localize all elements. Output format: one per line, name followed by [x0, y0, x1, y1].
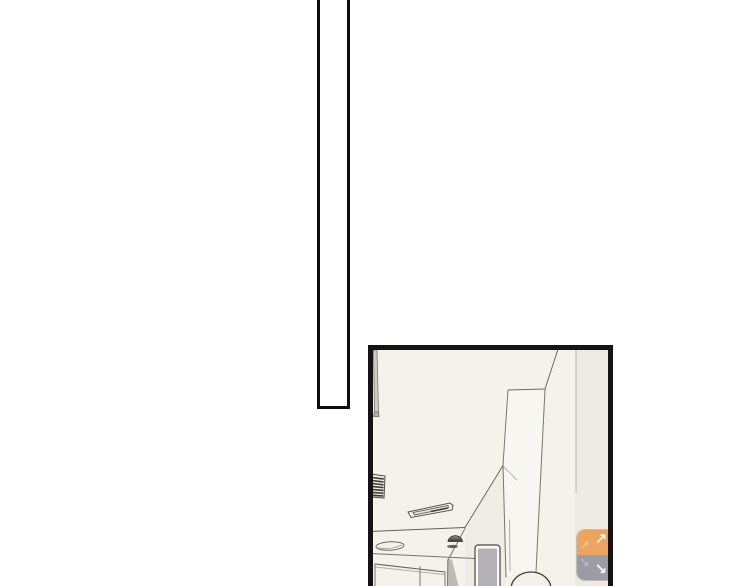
- page-background: ↗ ↗ ↘ ↘: [0, 0, 750, 586]
- scene-illustration: [373, 350, 608, 586]
- arrow-up-right-icon: ↗: [579, 540, 590, 553]
- window-frame: [475, 545, 500, 586]
- reader-nav-buttons: ↗ ↗ ↘ ↘: [577, 530, 608, 580]
- arrow-up-right-icon: ↗: [594, 532, 607, 547]
- scroll-down-button[interactable]: ↘ ↘: [577, 555, 608, 580]
- scene-comic-panel: ↗ ↗ ↘ ↘: [368, 345, 613, 586]
- arrow-down-right-icon: ↘: [579, 557, 590, 570]
- vent-grille: [373, 474, 385, 498]
- tall-comic-panel: [317, 0, 350, 409]
- scroll-up-button[interactable]: ↗ ↗: [577, 530, 608, 555]
- arrow-down-right-icon: ↘: [594, 562, 607, 577]
